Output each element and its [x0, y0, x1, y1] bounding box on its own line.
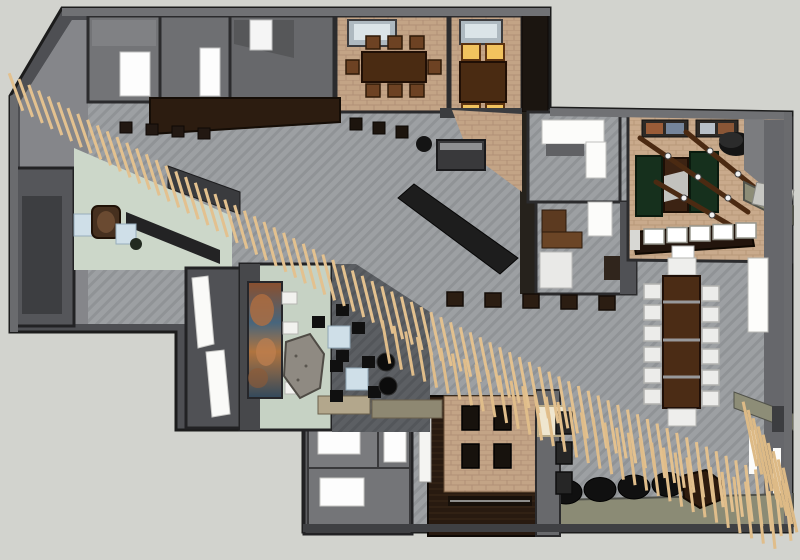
dining-chair	[428, 60, 441, 74]
black-chair	[312, 316, 325, 328]
bar-stool	[172, 126, 184, 137]
white-bar-stool	[713, 225, 733, 240]
communal-chair-left	[644, 368, 661, 383]
stool-table	[599, 296, 615, 310]
white-door	[588, 202, 612, 236]
white-bar-stool	[667, 228, 687, 243]
vestibule	[12, 168, 74, 326]
inner-door	[22, 196, 62, 314]
dining-table	[362, 52, 426, 82]
tan-bench	[318, 396, 370, 414]
black-chair	[330, 390, 343, 402]
bar-end-cap	[630, 230, 640, 250]
mural-blob	[256, 338, 276, 366]
wall-art	[646, 123, 663, 134]
beam-light	[665, 153, 671, 159]
communal-chair-right	[702, 286, 719, 301]
black-chair	[336, 304, 349, 316]
tan-platform	[444, 396, 536, 492]
bar-stool	[146, 124, 158, 135]
mural-blob	[250, 294, 274, 326]
communal-chair-left	[644, 389, 661, 404]
platform-table	[462, 406, 479, 430]
communal-table	[663, 276, 700, 408]
cylinder-stool	[584, 478, 616, 502]
yellow-booth-seat	[462, 44, 480, 60]
booth-table	[460, 62, 506, 102]
side-table	[350, 118, 362, 130]
communal-chair-left	[644, 305, 661, 320]
olive-bench	[372, 400, 442, 418]
dining-chair	[410, 84, 424, 97]
wall-shade	[92, 20, 156, 46]
black-chair	[362, 356, 375, 368]
communal-chair-right	[702, 370, 719, 385]
beam-light	[681, 195, 687, 201]
pouf	[377, 353, 395, 371]
yellow-booth-seat	[486, 44, 504, 60]
white-bar-stool	[736, 223, 756, 238]
white-door	[120, 52, 150, 96]
dining-chair	[388, 36, 402, 49]
wc-room-a	[88, 16, 160, 102]
beam-light	[735, 171, 741, 177]
armchair-seat	[97, 211, 115, 233]
beam-light	[707, 148, 713, 154]
communal-chair-right	[702, 349, 719, 364]
beam-light	[709, 212, 715, 218]
mural-bench	[282, 292, 297, 304]
white-bar-stool	[690, 226, 710, 241]
communal-chair-left	[644, 347, 661, 362]
beam-light	[725, 195, 731, 201]
dining-chair	[410, 36, 424, 49]
wall-art	[666, 123, 684, 134]
desk-return	[542, 232, 582, 248]
partition-side-tables	[556, 412, 572, 494]
partition-side-table	[556, 472, 572, 494]
wc-room-b	[160, 16, 230, 102]
platform-table	[462, 444, 479, 468]
floorplan-render	[0, 0, 800, 560]
wall-art	[700, 123, 715, 134]
bar-stool	[198, 128, 210, 139]
stool-table	[561, 295, 577, 309]
communal-chair-right	[702, 328, 719, 343]
side-table	[396, 126, 408, 138]
mural-bench	[283, 322, 298, 334]
dining-chair	[366, 36, 380, 49]
communal-chair-left	[644, 284, 661, 299]
communal-chair-right	[702, 307, 719, 322]
white-counter	[542, 120, 604, 144]
white-counter	[586, 142, 606, 178]
platform-table	[494, 444, 511, 468]
blue-coffee-table	[346, 368, 368, 390]
skylight-panel	[320, 478, 364, 506]
end-chair	[668, 409, 696, 426]
dining-chair	[346, 60, 359, 74]
pantry-room	[528, 112, 620, 202]
private-room-tables	[186, 268, 240, 428]
skylight-glass	[465, 24, 497, 38]
office-room	[536, 202, 636, 294]
dining-room-1	[336, 16, 448, 112]
rock-speckle	[305, 365, 308, 368]
mural-blob	[248, 368, 268, 388]
stool-table	[523, 294, 539, 308]
black-chair	[330, 360, 343, 372]
communal-chair-left	[644, 326, 661, 341]
stool-table	[485, 293, 501, 307]
dining-chair	[366, 84, 380, 97]
white-sofa	[540, 252, 572, 288]
window	[748, 258, 768, 332]
blue-coffee-table	[328, 326, 350, 348]
pouf	[379, 377, 397, 395]
floorplan-svg	[0, 0, 800, 560]
cylinder-light-top	[719, 132, 743, 148]
counter-front	[546, 144, 584, 156]
plant	[130, 238, 142, 250]
storage-room	[230, 16, 334, 102]
dining-chair	[388, 84, 402, 97]
hostess-counter-top	[440, 143, 482, 150]
platform-table	[494, 406, 511, 430]
dining-room-2	[450, 16, 522, 120]
black-chair	[352, 322, 365, 334]
beam-light	[695, 174, 701, 180]
white-bar-stool	[644, 229, 664, 244]
end-chair	[668, 258, 696, 275]
round-table	[416, 136, 432, 152]
end-seat	[672, 246, 694, 258]
rock-speckle	[295, 355, 298, 358]
side-table	[373, 122, 385, 134]
white-door	[250, 20, 272, 50]
communal-chair-right	[702, 391, 719, 406]
stool-table	[447, 292, 463, 306]
rock-speckle	[297, 379, 300, 382]
desk-chair	[604, 256, 620, 280]
white-door	[200, 48, 220, 96]
bar-stool	[120, 122, 132, 133]
